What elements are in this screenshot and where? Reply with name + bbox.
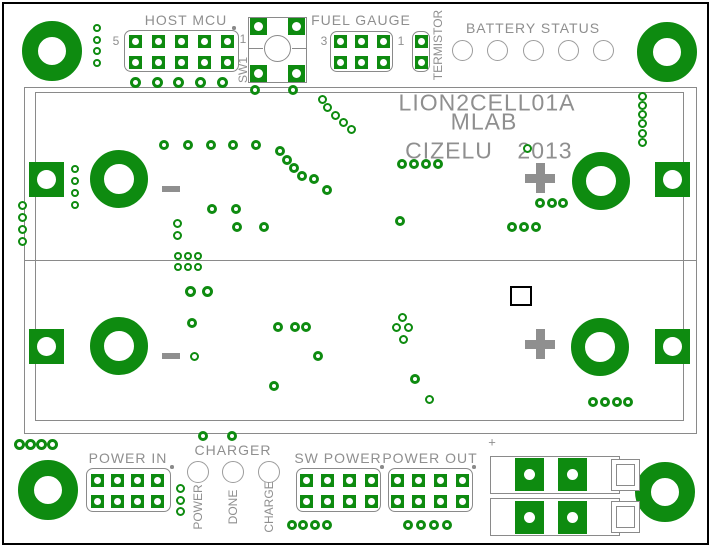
via <box>275 146 285 156</box>
cell-terminal-hole <box>572 152 630 210</box>
fuel-gauge-pin-number: 1 <box>398 34 405 48</box>
mounting-hole <box>18 460 78 520</box>
via <box>297 171 307 181</box>
connector-end-box-inner <box>616 464 635 486</box>
plus-symbol <box>536 163 545 193</box>
pad-hole <box>394 498 401 505</box>
pad-hole <box>224 38 231 45</box>
via <box>301 322 311 332</box>
power-in-label: POWER IN <box>89 450 168 466</box>
via <box>251 140 261 150</box>
pad-hole <box>437 477 444 484</box>
cell-terminal-hole <box>90 317 148 375</box>
pad-hole <box>201 38 208 45</box>
via <box>195 77 206 88</box>
battery-status-led <box>523 40 544 61</box>
smd-part <box>510 286 532 306</box>
charger-led <box>258 461 280 483</box>
mounting-hole <box>22 21 82 81</box>
pad-hole <box>224 59 231 66</box>
power-out-label: POWER OUT <box>382 450 477 466</box>
pad-hole <box>418 38 425 45</box>
pad-hole <box>663 170 682 189</box>
pad-hole <box>663 337 682 356</box>
via <box>231 204 241 214</box>
pad-hole <box>358 59 365 66</box>
via <box>399 335 408 344</box>
via <box>318 95 327 104</box>
pad-hole <box>94 498 101 505</box>
via <box>18 213 27 222</box>
battery-status-led <box>452 40 473 61</box>
via <box>183 140 193 150</box>
pad-hole <box>368 498 375 505</box>
via <box>612 397 622 407</box>
via <box>339 118 348 127</box>
pad-hole <box>292 69 301 78</box>
via <box>398 313 407 322</box>
via <box>638 119 647 128</box>
pad-hole <box>114 477 121 484</box>
via <box>47 439 58 450</box>
pad-hole <box>524 469 535 480</box>
sw1-lead-line <box>292 48 307 49</box>
via <box>331 111 340 120</box>
minus-symbol <box>162 186 180 193</box>
via <box>71 165 79 173</box>
via <box>309 174 319 184</box>
pad-hole <box>380 59 387 66</box>
via <box>322 520 332 530</box>
pad-hole <box>415 477 422 484</box>
pad-hole <box>154 477 161 484</box>
via <box>184 263 192 271</box>
pad-hole <box>415 498 422 505</box>
via <box>416 520 426 530</box>
minus-symbol <box>162 353 180 360</box>
pad-hole <box>94 477 101 484</box>
via <box>228 140 238 150</box>
via <box>269 381 279 391</box>
via <box>638 92 647 101</box>
via <box>519 222 529 232</box>
pad-hole <box>358 38 365 45</box>
via <box>638 129 647 138</box>
pad-hole <box>459 498 466 505</box>
via <box>273 322 283 332</box>
via <box>523 144 532 153</box>
via <box>638 101 647 110</box>
via <box>93 24 101 32</box>
via <box>288 85 298 95</box>
cell-terminal-hole <box>90 150 148 208</box>
via <box>18 225 27 234</box>
pad-hole <box>132 59 139 66</box>
mounting-hole <box>637 22 697 82</box>
via <box>232 222 242 232</box>
pad-hole <box>254 69 263 78</box>
pad-hole <box>368 477 375 484</box>
connector-row-outline <box>490 498 620 536</box>
via <box>287 520 297 530</box>
pcb-image: LION2CELL01A MLAB CIZELU 2013 HOST MCU51… <box>0 0 712 548</box>
via <box>547 198 557 208</box>
via <box>18 201 27 210</box>
via <box>429 520 439 530</box>
via <box>347 125 356 134</box>
via <box>397 159 407 169</box>
via <box>198 431 208 441</box>
fuel-gauge-label: FUEL GAUGE <box>311 12 411 28</box>
charger-label: CHARGER <box>194 442 271 458</box>
via <box>638 110 647 119</box>
via <box>638 138 647 147</box>
pad-hole <box>254 22 263 31</box>
via <box>176 484 185 493</box>
via <box>558 198 568 208</box>
pad-hole <box>155 38 162 45</box>
pad-hole <box>303 477 310 484</box>
battery-status-led <box>593 40 614 61</box>
pad-hole <box>324 498 331 505</box>
via <box>259 222 269 232</box>
via <box>425 395 434 404</box>
via <box>531 222 541 232</box>
via <box>392 323 401 332</box>
via <box>174 263 182 271</box>
pad-hole <box>134 477 141 484</box>
via <box>190 352 199 361</box>
charger-led <box>187 461 209 483</box>
mounting-hole <box>635 462 695 522</box>
sw-power-label: SW POWER <box>294 450 381 466</box>
pad-hole <box>37 337 56 356</box>
via <box>410 374 420 384</box>
pad-hole <box>380 38 387 45</box>
charger-led-label: POWER <box>191 484 205 529</box>
connector-plus-label: + <box>488 435 496 450</box>
via <box>207 204 217 214</box>
via <box>176 496 185 505</box>
via <box>36 439 47 450</box>
pad-hole <box>132 38 139 45</box>
via <box>14 439 25 450</box>
via <box>159 140 169 150</box>
via <box>202 286 213 297</box>
via <box>93 47 101 55</box>
via <box>185 286 196 297</box>
via <box>71 189 79 197</box>
pin1-marker-dot <box>170 465 174 469</box>
pad-hole <box>303 498 310 505</box>
via <box>600 397 610 407</box>
via <box>588 397 598 407</box>
pad-hole <box>292 22 301 31</box>
via <box>206 140 216 150</box>
pcb-board: LION2CELL01A MLAB CIZELU 2013 HOST MCU51… <box>0 0 712 548</box>
via <box>442 520 452 530</box>
via <box>93 36 101 44</box>
pin1-marker-dot <box>232 26 236 30</box>
cell-terminal-hole <box>571 318 629 376</box>
pad-hole <box>201 59 208 66</box>
via <box>130 77 141 88</box>
host-mcu-pin-number: 1 <box>240 32 247 46</box>
connector-end-box-inner <box>616 506 635 528</box>
host-mcu-label: HOST MCU <box>145 12 227 28</box>
via <box>173 231 182 240</box>
via <box>93 59 101 67</box>
pad-hole <box>178 59 185 66</box>
via <box>194 263 202 271</box>
via <box>174 252 182 260</box>
plus-symbol <box>536 329 545 359</box>
via <box>217 77 228 88</box>
via <box>290 322 300 332</box>
via <box>71 201 79 209</box>
pad-hole <box>114 498 121 505</box>
pad-hole <box>37 170 56 189</box>
via <box>403 520 413 530</box>
pad-hole <box>567 469 578 480</box>
via <box>184 252 192 260</box>
via <box>313 351 323 361</box>
charger-led <box>222 461 244 483</box>
pad-hole <box>394 477 401 484</box>
via <box>298 520 308 530</box>
connector-row-outline <box>490 456 620 494</box>
pad-hole <box>524 512 535 523</box>
pad-hole <box>337 59 344 66</box>
via <box>194 252 202 260</box>
pad-hole <box>346 477 353 484</box>
charger-led-label: CHARGE <box>262 481 276 532</box>
pad-hole <box>437 498 444 505</box>
via <box>173 219 182 228</box>
via <box>535 198 545 208</box>
via <box>173 77 184 88</box>
pad-hole <box>134 498 141 505</box>
via <box>433 159 443 169</box>
pad-hole <box>154 498 161 505</box>
battery-status-label: BATTERY STATUS <box>466 20 600 36</box>
via <box>187 318 197 328</box>
pin1-marker-dot <box>472 465 476 469</box>
pad-hole <box>337 38 344 45</box>
via <box>25 439 36 450</box>
via <box>71 177 79 185</box>
via <box>404 323 413 332</box>
via <box>250 85 260 95</box>
via <box>395 216 405 226</box>
pad-hole <box>324 477 331 484</box>
via <box>227 431 237 441</box>
sw1-label: SW1 <box>236 57 250 83</box>
sw1-lead-line <box>248 48 263 49</box>
via <box>323 103 332 112</box>
fuel-gauge-pin-number: 3 <box>321 34 328 48</box>
battery-status-led <box>558 40 579 61</box>
via <box>507 222 517 232</box>
termistor-label: TERMISTOR <box>431 10 445 80</box>
sw1-button <box>264 35 291 62</box>
holder-cell-divider <box>24 260 697 261</box>
via <box>18 237 27 246</box>
host-mcu-pin-number: 5 <box>113 34 120 48</box>
pad-hole <box>567 512 578 523</box>
via <box>310 520 320 530</box>
pad-hole <box>155 59 162 66</box>
via <box>623 397 633 407</box>
pad-hole <box>459 477 466 484</box>
battery-status-led <box>487 40 508 61</box>
via <box>322 185 332 195</box>
charger-led-label: DONE <box>226 490 240 525</box>
via <box>176 507 185 516</box>
via <box>152 77 163 88</box>
pad-hole <box>346 498 353 505</box>
via <box>409 159 419 169</box>
via <box>421 159 431 169</box>
pad-hole <box>418 59 425 66</box>
pad-hole <box>178 38 185 45</box>
